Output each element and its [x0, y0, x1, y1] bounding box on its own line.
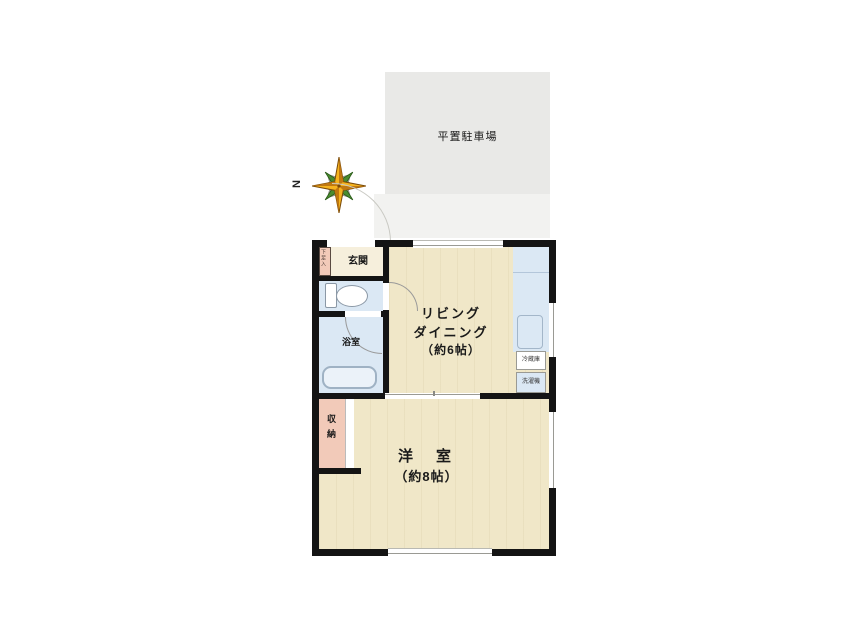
- parking-label: 平置駐車場: [385, 128, 550, 144]
- western-room-label: 洋 室 （約8帖）: [339, 445, 514, 485]
- sliding-door-tick: [433, 391, 435, 396]
- washer-box: 洗濯機: [516, 372, 546, 393]
- wall-genkan-toilet: [319, 276, 389, 281]
- living-dining-line1: リビング: [421, 303, 481, 322]
- kitchen-sink-counter: [517, 315, 543, 349]
- window-bottom-mullion: [388, 553, 492, 554]
- refrigerator-box: 冷蔵庫: [516, 351, 546, 370]
- compass-north-label: N: [291, 180, 303, 188]
- entrance-door-opening: [327, 240, 375, 247]
- window-right-western: [549, 412, 556, 488]
- window-top-mullion: [413, 245, 503, 246]
- living-dining-size: （約6帖）: [421, 341, 481, 358]
- floorplan-page: 平置駐車場 N 冷蔵庫 洗濯: [0, 0, 852, 636]
- window-right-western-mullion: [553, 412, 554, 488]
- ld-western-sliding-door: [385, 393, 480, 399]
- refrigerator-label: 冷蔵庫: [522, 357, 540, 363]
- window-right-kitchen: [549, 303, 556, 357]
- storage-label: 収納: [325, 414, 338, 444]
- toilet-bowl-icon: [336, 285, 368, 307]
- living-dining-line2: ダイニング: [413, 322, 488, 341]
- washer-label: 洗濯機: [522, 379, 540, 385]
- living-dining-label: リビング ダイニング （約6帖）: [389, 303, 513, 358]
- window-bottom: [388, 548, 492, 556]
- shoe-box-label: 下足入: [320, 249, 327, 267]
- genkan-label: 玄関: [333, 252, 383, 267]
- floorplan: 冷蔵庫 洗濯機: [312, 240, 556, 556]
- bathroom-label: 浴室: [319, 335, 383, 348]
- western-room-size: （約8帖）: [394, 466, 458, 485]
- window-right-kitchen-mullion: [553, 303, 554, 357]
- window-top: [413, 240, 503, 248]
- entrance-door-swing-arc: [332, 183, 391, 242]
- western-room-line1: 洋 室: [398, 445, 455, 466]
- bathtub-icon: [322, 366, 377, 389]
- kitchen-divider: [513, 272, 549, 273]
- parking-apron: [374, 194, 550, 238]
